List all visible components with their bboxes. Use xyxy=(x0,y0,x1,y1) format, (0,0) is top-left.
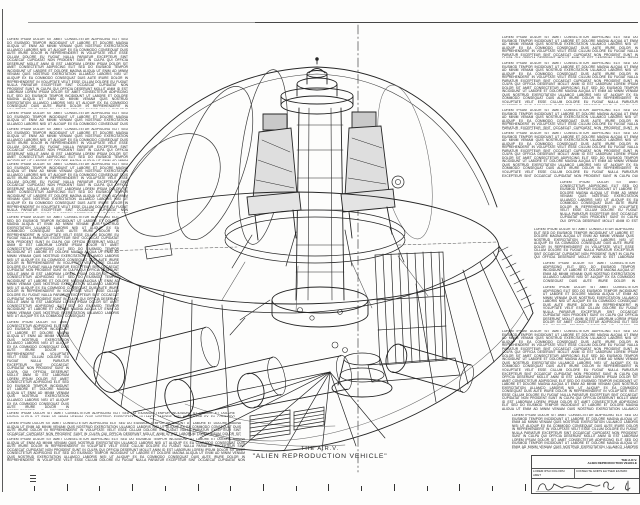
ejection-seat-right xyxy=(341,112,404,266)
scale-tick xyxy=(361,486,362,491)
deck-centerline xyxy=(100,242,497,251)
scale-tick xyxy=(67,484,68,491)
text-block-right-10: LOREM IPSUM DOLOR SIT AMET CONSECTETUR A… xyxy=(512,414,638,449)
dome-outline xyxy=(92,67,497,226)
scale-tick xyxy=(230,486,231,491)
signature xyxy=(532,479,637,493)
drawing-title: THE A.R.V. "ALIEN REPRODUCTION VEHICLE" xyxy=(215,446,425,460)
top-finial xyxy=(281,58,353,114)
text-block-right-8: LOREM IPSUM DOLOR SIT AMET CONSECTETUR A… xyxy=(543,286,638,325)
text-block-right-5: LOREM IPSUM DOLOR SIT AMET CONSECTETUR A… xyxy=(560,181,638,222)
scale-tick xyxy=(132,484,133,491)
scale-tick xyxy=(459,484,460,491)
text-block-bottom-left-3: LOREM IPSUM DOLOR SIT AMET CONSECTETUR A… xyxy=(7,438,245,462)
dome-ribs xyxy=(104,67,442,255)
scale-bar xyxy=(34,483,526,491)
scale-tick xyxy=(394,484,395,491)
title-block-cells: LOREM IPSU DOLORSI AMET CONSECTE ADIPIS … xyxy=(532,468,639,479)
central-bell xyxy=(230,300,392,397)
scanned-drawing-page: LOREM IPSUM DOLOR SIT AMET CONSECTETUR A… xyxy=(0,0,640,505)
text-block-bottom-left-2: LOREM IPSUM DOLOR SIT AMET CONSECTETUR A… xyxy=(7,422,241,436)
text-block-left-4: LOREM IPSUM DOLOR SIT AMET CONSECTETUR A… xyxy=(7,163,128,213)
cut-edge-hatching xyxy=(58,247,534,310)
text-block-left-1: LOREM IPSUM DOLOR SIT AMET CONSECTETUR A… xyxy=(7,38,128,109)
text-block-left-5: LOREM IPSUM DOLOR SIT AMET CONSECTETUR A… xyxy=(7,216,119,320)
text-block-right-6: LOREM IPSUM DOLOR SIT AMET CONSECTETUR A… xyxy=(534,228,634,259)
text-block-right-4: LOREM IPSUM DOLOR SIT AMET CONSECTETUR A… xyxy=(502,132,638,177)
drawing-title-line2: "ALIEN REPRODUCTION VEHICLE" xyxy=(215,453,425,460)
outer-skirt xyxy=(59,246,533,451)
text-block-right-9: LOREM IPSUM DOLOR SIT AMET CONSECTETUR A… xyxy=(502,330,638,410)
scale-tick xyxy=(525,484,526,491)
text-block-left-6: LOREM IPSUM DOLOR SIT AMET CONSECTETUR A… xyxy=(7,321,69,410)
text-block-bottom-left-1: LOREM IPSUM DOLOR SIT AMET CONSECTETUR A… xyxy=(7,412,235,417)
title-block-cell-b: CONSECTE ADIPIS ELITSED EIUSMO xyxy=(575,469,639,478)
upper-deck-ring xyxy=(87,192,499,313)
scale-tick xyxy=(99,486,100,491)
text-block-right-1: LOREM IPSUM DOLOR SIT AMET CONSECTETUR A… xyxy=(502,36,638,58)
text-block-left-3: LOREM IPSUM DOLOR SIT AMET CONSECTETUR A… xyxy=(7,128,128,161)
title-block-name-line2: ALIEN REPRODUCTION VEHICLE xyxy=(587,462,637,465)
title-block: THE A.R.V. ALIEN REPRODUCTION VEHICLE LO… xyxy=(531,455,640,494)
title-block-cell-a: LOREM IPSU DOLORSI AMET xyxy=(532,469,575,478)
scale-tick xyxy=(492,486,493,491)
text-block-right-3: LOREM IPSUM DOLOR SIT AMET CONSECTETUR A… xyxy=(502,109,638,130)
crew-column xyxy=(272,108,368,327)
scale-tick xyxy=(427,486,428,491)
text-block-right-2: LOREM IPSUM DOLOR SIT AMET CONSECTETUR A… xyxy=(502,62,638,105)
text-block-left-2: LOREM IPSUM DOLOR SIT AMET CONSECTETUR A… xyxy=(7,112,128,125)
title-block-header: THE A.R.V. ALIEN REPRODUCTION VEHICLE xyxy=(532,456,639,468)
scale-tick xyxy=(198,484,199,491)
ejection-seat-left xyxy=(232,114,301,268)
scale-tick xyxy=(328,484,329,491)
scale-tick xyxy=(296,486,297,491)
page-top-border-dark-segment xyxy=(255,22,638,24)
page-left-border xyxy=(2,9,3,492)
scale-tick xyxy=(34,486,35,491)
fuel-tanks xyxy=(90,325,477,421)
finned-assembly xyxy=(368,252,460,382)
scale-tick xyxy=(165,486,166,491)
drawing-title-line1: THE A.R.V. xyxy=(215,446,425,452)
scale-tick xyxy=(263,484,264,491)
louver-stacks xyxy=(250,407,324,440)
text-block-right-7: LOREM IPSUM DOLOR SIT AMET CONSECTETUR A… xyxy=(543,262,635,282)
